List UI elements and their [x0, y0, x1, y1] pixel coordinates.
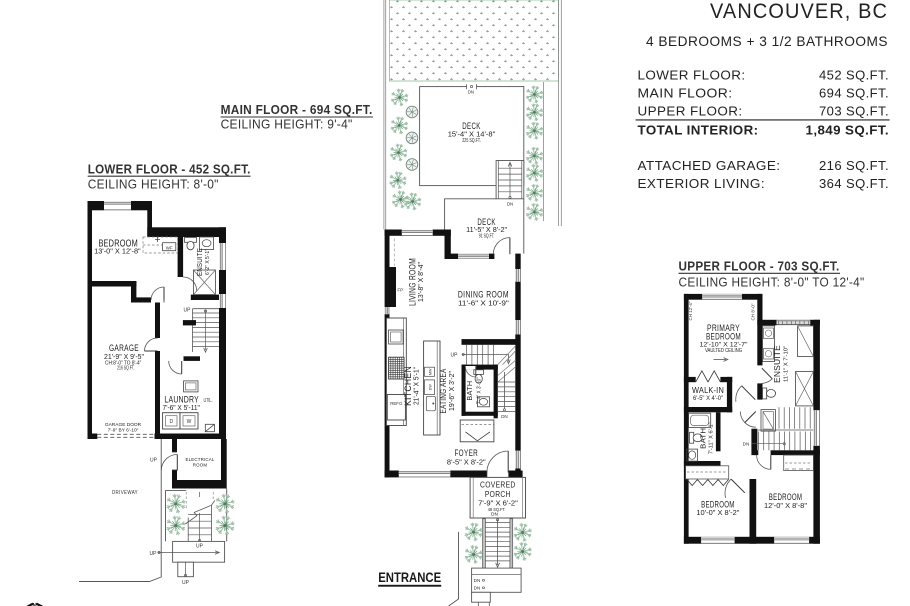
- svg-text:13'-8" X 8'-4": 13'-8" X 8'-4": [418, 262, 425, 302]
- svg-text:KITCHEN: KITCHEN: [403, 366, 413, 406]
- svg-text:WALK-IN: WALK-IN: [692, 386, 724, 395]
- svg-text:EATING AREA: EATING AREA: [438, 369, 448, 414]
- svg-text:UP: UP: [196, 544, 204, 550]
- svg-text:UP: UP: [150, 458, 158, 464]
- svg-text:FP: FP: [397, 288, 403, 293]
- svg-text:ELECTRICAL: ELECTRICAL: [186, 457, 215, 463]
- svg-text:7'-9" BY 6'-10": 7'-9" BY 6'-10": [108, 427, 139, 433]
- svg-text:DN: DN: [468, 89, 474, 94]
- svg-text:225 SQ.FT.: 225 SQ.FT.: [462, 138, 481, 144]
- svg-text:UP: UP: [182, 580, 190, 586]
- svg-text:13'-0" X 12'-8": 13'-0" X 12'-8": [94, 247, 141, 256]
- svg-text:BEDROOM: BEDROOM: [701, 499, 735, 509]
- svg-text:10'-0" X 8'-2": 10'-0" X 8'-2": [696, 510, 740, 517]
- svg-text:MAIN FLOOR:: MAIN FLOOR:: [638, 85, 733, 100]
- svg-text:7'-4" X 3'-10": 7'-4" X 3'-10": [476, 377, 482, 404]
- svg-text:LOWER FLOOR:: LOWER FLOOR:: [638, 68, 746, 83]
- svg-text:364 SQ.FT.: 364 SQ.FT.: [819, 176, 889, 191]
- svg-text:LOWER FLOOR - 452 SQ.FT.: LOWER FLOOR - 452 SQ.FT.: [88, 162, 251, 176]
- svg-text:LIVING ROOM: LIVING ROOM: [408, 258, 418, 306]
- svg-text:BATH: BATH: [699, 428, 708, 449]
- svg-text:UP: UP: [184, 308, 192, 314]
- svg-text:W: W: [187, 419, 192, 425]
- svg-text:TOTAL INTERIOR:: TOTAL INTERIOR:: [638, 122, 759, 137]
- svg-text:UP: UP: [451, 352, 459, 358]
- svg-text:1,849 SQ.FT.: 1,849 SQ.FT.: [806, 122, 890, 137]
- svg-text:703 SQ.FT.: 703 SQ.FT.: [819, 104, 889, 119]
- svg-text:UP: UP: [150, 551, 158, 557]
- svg-text:694 SQ.FT.: 694 SQ.FT.: [819, 85, 889, 100]
- svg-text:DN: DN: [474, 585, 481, 590]
- svg-text:DW: DW: [428, 384, 432, 391]
- svg-text:ENSUITE: ENSUITE: [195, 248, 204, 276]
- svg-text:MAIN FLOOR - 694 SQ.FT.: MAIN FLOOR - 694 SQ.FT.: [221, 103, 373, 117]
- svg-text:DN: DN: [507, 202, 513, 207]
- svg-text:D: D: [169, 419, 173, 425]
- svg-text:BEDROOM: BEDROOM: [769, 492, 803, 502]
- svg-text:CEILING HEIGHT: 8'-0": CEILING HEIGHT: 8'-0": [88, 177, 219, 191]
- svg-text:DN: DN: [474, 578, 481, 583]
- svg-text:GARAGE DOOR: GARAGE DOOR: [105, 422, 142, 428]
- svg-text:6'-2" X 5'-1": 6'-2" X 5'-1": [205, 249, 211, 275]
- svg-text:7'-9" X 6'-2": 7'-9" X 6'-2": [478, 500, 518, 507]
- svg-text:DN: DN: [743, 441, 750, 446]
- svg-text:91 SQ.FT.: 91 SQ.FT.: [479, 234, 495, 240]
- svg-text:19'-6" X 3'-2": 19'-6" X 3'-2": [449, 371, 456, 411]
- svg-text:MW: MW: [428, 368, 432, 375]
- svg-text:DRIVEWAY: DRIVEWAY: [112, 490, 138, 496]
- svg-text:COVERED: COVERED: [480, 480, 516, 489]
- svg-text:ENTRANCE: ENTRANCE: [378, 570, 441, 585]
- svg-text:452 SQ.FT.: 452 SQ.FT.: [819, 68, 889, 83]
- svg-text:DN: DN: [491, 512, 498, 518]
- svg-text:UPPER FLOOR - 703 SQ.FT.: UPPER FLOOR - 703 SQ.FT.: [679, 259, 840, 273]
- svg-text:11'-6" X 10'-9": 11'-6" X 10'-9": [458, 298, 509, 307]
- svg-text:CH 12'-4": CH 12'-4": [688, 301, 693, 320]
- svg-text:ENSUITE: ENSUITE: [773, 345, 782, 383]
- svg-text:6'-5" X 4'-0": 6'-5" X 4'-0": [693, 395, 723, 402]
- svg-text:EXTERIOR LIVING:: EXTERIOR LIVING:: [638, 176, 766, 191]
- svg-text:4 BEDROOMS + 3 1/2 BATHROOMS: 4 BEDROOMS + 3 1/2 BATHROOMS: [646, 33, 888, 49]
- svg-text:8'-5" X 8'-2": 8'-5" X 8'-2": [447, 457, 486, 466]
- svg-text:BEDROOM: BEDROOM: [706, 331, 741, 341]
- svg-text:BATH: BATH: [465, 381, 474, 401]
- svg-text:WF: WF: [166, 245, 173, 250]
- svg-text:UTIL.: UTIL.: [203, 398, 212, 404]
- svg-text:12'-0" X 8'-8": 12'-0" X 8'-8": [764, 503, 808, 510]
- svg-text:7'-11" X 6'-1": 7'-11" X 6'-1": [709, 422, 715, 454]
- svg-text:CH 8'-0": CH 8'-0": [751, 303, 756, 320]
- svg-text:CEILING HEIGHT: 8'-0" TO 12'-4: CEILING HEIGHT: 8'-0" TO 12'-4": [679, 276, 865, 290]
- svg-text:VAULTED CEILING: VAULTED CEILING: [705, 348, 742, 354]
- svg-text:7'-6" X 5'-11": 7'-6" X 5'-11": [163, 403, 201, 412]
- svg-text:CEILING HEIGHT: 9'-4": CEILING HEIGHT: 9'-4": [221, 117, 353, 131]
- svg-text:PORCH: PORCH: [485, 490, 511, 499]
- svg-text:11'-1" X 7'-10": 11'-1" X 7'-10": [784, 346, 790, 382]
- svg-text:ROOM: ROOM: [193, 462, 208, 468]
- svg-text:ATTACHED GARAGE:: ATTACHED GARAGE:: [638, 158, 781, 173]
- svg-text:21'-4" X 5'-1": 21'-4" X 5'-1": [414, 367, 421, 405]
- svg-text:UPPER FLOOR:: UPPER FLOOR:: [638, 104, 743, 119]
- svg-text:216 SQ.FT.: 216 SQ.FT.: [117, 365, 134, 371]
- svg-text:DN: DN: [501, 414, 508, 419]
- svg-text:REFG: REFG: [390, 401, 403, 406]
- svg-text:VANCOUVER, BC: VANCOUVER, BC: [710, 0, 888, 23]
- svg-text:216 SQ.FT.: 216 SQ.FT.: [819, 158, 889, 173]
